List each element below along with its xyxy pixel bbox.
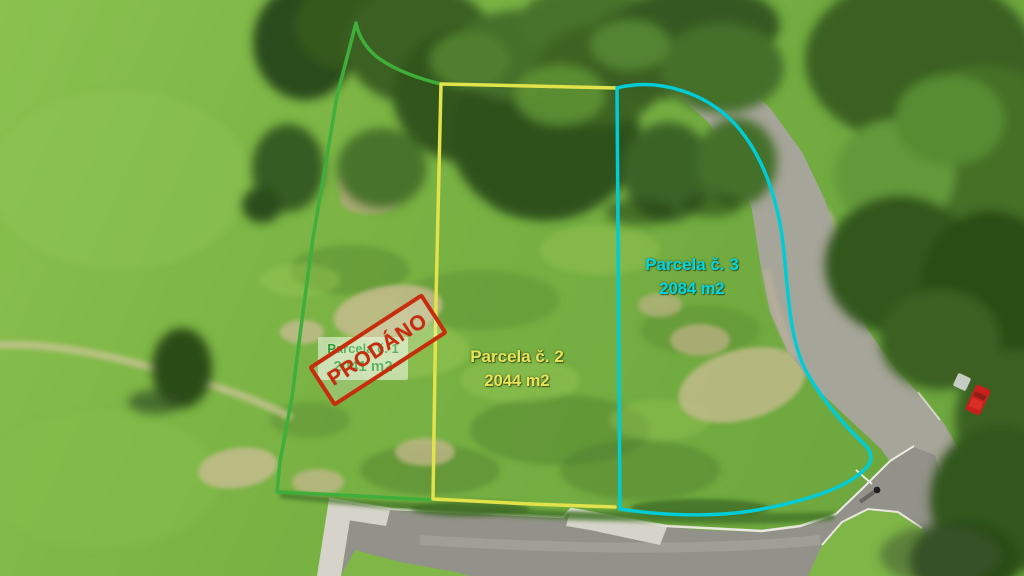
aerial-photo: Parcela č. 1 2041 m2 PRODÁNO Parcela č. … (0, 0, 1024, 576)
aerial-photo-canvas (0, 0, 1024, 576)
